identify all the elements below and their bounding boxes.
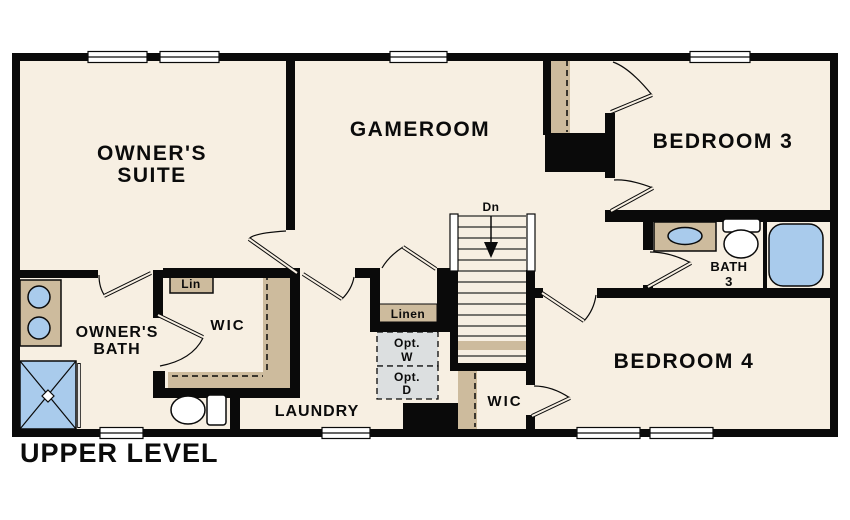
- owner-wic-label: WIC: [210, 317, 245, 334]
- stairs-dn-label: Dn: [483, 200, 500, 214]
- bath3-sink: [668, 228, 702, 245]
- gameroom-label: GAMEROOM: [350, 118, 490, 141]
- opt-washer-label-line2: W: [401, 350, 413, 364]
- window: [88, 52, 147, 63]
- floorplan-svg: OWNER'S SUITE GAMEROOM BEDROOM 3 BEDROOM…: [0, 0, 850, 520]
- bedroom4-wic-shelf: [458, 371, 477, 429]
- opt-dryer-label-line2: D: [402, 383, 411, 397]
- opt-dryer-label-line1: Opt.: [394, 370, 420, 384]
- wall-chase: [545, 133, 605, 172]
- linen-closet-label: Linen: [391, 307, 426, 321]
- wall-block: [403, 403, 458, 429]
- window: [160, 52, 219, 63]
- bedroom4-label: BEDROOM 4: [614, 350, 755, 373]
- bath3-label-line2: 3: [725, 274, 733, 289]
- bath3-tub: [769, 224, 823, 286]
- owner-suite-label-line1: OWNER'S: [97, 142, 207, 165]
- opt-washer-label-line1: Opt.: [394, 336, 420, 350]
- owner-bath-label-line1: OWNER'S: [76, 324, 159, 341]
- wall-closet-left: [543, 58, 551, 135]
- owner-bath-label-line2: BATH: [93, 341, 140, 358]
- wall-closet-right: [605, 113, 615, 178]
- owner-suite-label-line2: SUITE: [117, 164, 186, 187]
- stair-landing: [458, 341, 526, 350]
- window: [322, 428, 370, 439]
- page-title: UPPER LEVEL: [20, 438, 219, 468]
- wall-stairs-left: [450, 268, 458, 367]
- owner-wic-shelf-bottom: [168, 372, 263, 388]
- wall-owner-bath-top: [20, 270, 98, 278]
- wall-bath3-left: [643, 222, 653, 250]
- wall-stairs-bottom: [450, 363, 535, 371]
- owner-bath-toilet: [171, 395, 226, 425]
- wall-tub-divider: [763, 222, 767, 288]
- window: [577, 428, 640, 439]
- window: [650, 428, 713, 439]
- laundry-label: LAUNDRY: [275, 403, 360, 420]
- bedroom4-wic-label: WIC: [487, 393, 522, 410]
- bedroom3-label: BEDROOM 3: [653, 130, 794, 153]
- floorplan-page: OWNER'S SUITE GAMEROOM BEDROOM 3 BEDROOM…: [0, 0, 850, 520]
- window: [100, 428, 143, 439]
- window: [690, 52, 750, 63]
- wall-linen-bottom: [370, 322, 450, 332]
- lin-closet-label: Lin: [181, 277, 201, 291]
- owner-bath-sink-1: [28, 286, 50, 308]
- bath3-label-line1: BATH: [710, 259, 747, 274]
- window: [390, 52, 447, 63]
- wall-bedroom4-top: [597, 288, 838, 298]
- wall-laundry-left: [230, 390, 240, 437]
- wall-owner-wic-right: [290, 272, 300, 398]
- bath3-toilet: [723, 219, 760, 258]
- wall-bedroom3-bottom: [605, 210, 838, 222]
- wall-owner-suite-right: [286, 61, 295, 230]
- owner-bath-sink-2: [28, 317, 50, 339]
